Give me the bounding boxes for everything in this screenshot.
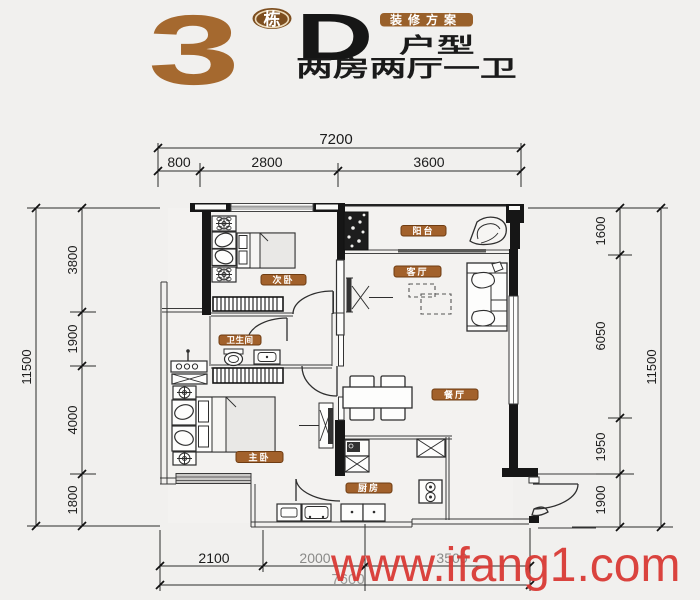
svg-text:两房两厅一卫: 两房两厅一卫 bbox=[296, 55, 517, 81]
svg-text:1900: 1900 bbox=[65, 325, 80, 354]
svg-text:客厅: 客厅 bbox=[405, 266, 428, 277]
svg-text:1900: 1900 bbox=[593, 486, 608, 515]
svg-text:厨房: 厨房 bbox=[358, 482, 380, 493]
svg-text:卫生间: 卫生间 bbox=[226, 335, 253, 345]
svg-text:6050: 6050 bbox=[593, 322, 608, 351]
svg-text:2100: 2100 bbox=[198, 550, 229, 566]
svg-text:2800: 2800 bbox=[251, 154, 282, 170]
svg-text:栋: 栋 bbox=[264, 9, 281, 29]
svg-text:装修方案: 装修方案 bbox=[389, 12, 462, 27]
svg-text:户型: 户型 bbox=[399, 34, 475, 57]
svg-text:800: 800 bbox=[167, 154, 191, 170]
svg-text:1950: 1950 bbox=[593, 433, 608, 462]
svg-text:次卧: 次卧 bbox=[272, 274, 294, 285]
svg-text:3800: 3800 bbox=[65, 246, 80, 275]
svg-text:www.ifang1.com: www.ifang1.com bbox=[330, 539, 680, 592]
svg-text:3600: 3600 bbox=[413, 154, 444, 170]
svg-text:11500: 11500 bbox=[19, 349, 34, 384]
svg-text:主卧: 主卧 bbox=[248, 451, 270, 462]
svg-text:3: 3 bbox=[148, 0, 240, 105]
svg-text:1600: 1600 bbox=[593, 217, 608, 246]
svg-text:餐厅: 餐厅 bbox=[443, 389, 466, 400]
svg-text:2000: 2000 bbox=[299, 550, 330, 566]
svg-text:阳台: 阳台 bbox=[412, 225, 434, 236]
svg-text:1800: 1800 bbox=[65, 486, 80, 515]
svg-text:11500: 11500 bbox=[644, 349, 659, 384]
svg-text:4000: 4000 bbox=[65, 406, 80, 435]
svg-text:7200: 7200 bbox=[319, 131, 352, 148]
